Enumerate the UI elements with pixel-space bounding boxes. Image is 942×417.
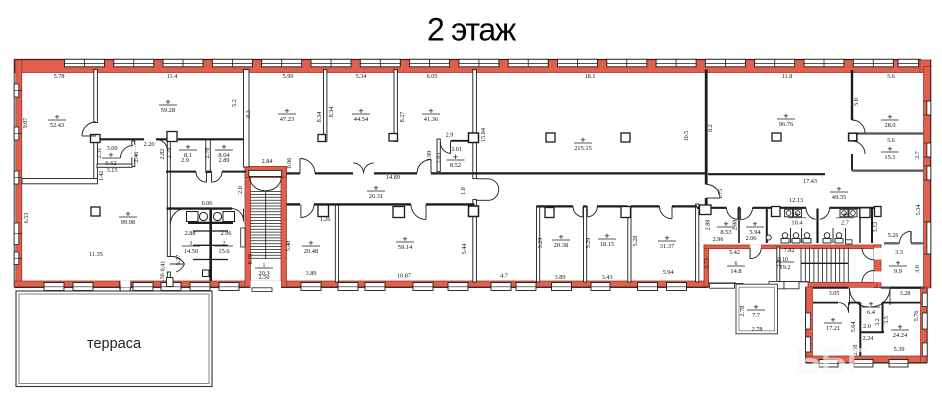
svg-text:2.79: 2.79 — [166, 148, 173, 159]
svg-text:8.27: 8.27 — [399, 112, 406, 123]
svg-text:18.15: 18.15 — [600, 241, 614, 248]
svg-text:3.05: 3.05 — [829, 290, 840, 297]
svg-text:5.27: 5.27 — [175, 255, 182, 266]
svg-text:6.05: 6.05 — [427, 73, 438, 80]
svg-text:1.8: 1.8 — [460, 187, 467, 195]
svg-text:2.78: 2.78 — [739, 306, 746, 317]
svg-text:3.89: 3.89 — [306, 270, 317, 277]
svg-text:3.28: 3.28 — [900, 290, 911, 297]
svg-text:17.43: 17.43 — [803, 178, 817, 185]
svg-text:2.96: 2.96 — [713, 236, 724, 243]
svg-text:2.83: 2.83 — [436, 153, 443, 164]
svg-text:8.2: 8.2 — [707, 124, 714, 132]
svg-text:10.4: 10.4 — [791, 220, 803, 227]
svg-text:2.0: 2.0 — [237, 186, 244, 194]
svg-text:3.89: 3.89 — [555, 274, 566, 281]
svg-text:4.7: 4.7 — [500, 273, 508, 280]
svg-text:14.8: 14.8 — [730, 268, 741, 275]
svg-text:8.53: 8.53 — [720, 229, 731, 236]
svg-text:5.6: 5.6 — [887, 73, 895, 80]
svg-text:2.99: 2.99 — [426, 151, 433, 162]
svg-text:5.29: 5.29 — [537, 238, 544, 249]
svg-text:99.98: 99.98 — [121, 219, 135, 226]
svg-text:15.84: 15.84 — [480, 128, 487, 142]
svg-text:2.84: 2.84 — [262, 158, 273, 165]
svg-text:2.06: 2.06 — [746, 235, 757, 242]
svg-text:5.48: 5.48 — [285, 241, 292, 252]
svg-text:11.8: 11.8 — [782, 73, 793, 80]
svg-text:2.50: 2.50 — [259, 274, 270, 281]
svg-text:96.76: 96.76 — [779, 121, 793, 128]
svg-text:ЬБГ: ЬБГ — [795, 340, 867, 381]
svg-text:3.00: 3.00 — [107, 145, 118, 152]
svg-text:1.26: 1.26 — [320, 216, 331, 223]
svg-text:11.4: 11.4 — [167, 73, 178, 80]
svg-text:2.9: 2.9 — [181, 157, 189, 164]
svg-text:2.31: 2.31 — [96, 148, 103, 159]
svg-text:15.6: 15.6 — [218, 248, 229, 255]
svg-text:6.06: 6.06 — [202, 200, 213, 207]
svg-text:0.41: 0.41 — [160, 261, 167, 272]
svg-text:8.10: 8.10 — [247, 254, 254, 265]
svg-text:28.0: 28.0 — [884, 122, 895, 129]
svg-text:10.87: 10.87 — [397, 273, 411, 280]
svg-text:18.1: 18.1 — [585, 73, 596, 80]
svg-text:.36: .36 — [159, 273, 166, 281]
svg-text:59.14: 59.14 — [398, 244, 413, 251]
svg-text:59.28: 59.28 — [161, 107, 175, 114]
svg-text:2.82: 2.82 — [159, 149, 166, 160]
svg-text:49.35: 49.35 — [832, 194, 846, 201]
svg-text:5.94: 5.94 — [663, 269, 674, 276]
svg-text:2.9: 2.9 — [446, 132, 454, 139]
svg-text:20.48: 20.48 — [304, 248, 318, 255]
svg-text:2 этаж: 2 этаж — [427, 12, 517, 48]
svg-text:2.89: 2.89 — [219, 157, 230, 164]
svg-text:2.88: 2.88 — [705, 220, 712, 231]
svg-text:2.88: 2.88 — [185, 230, 196, 237]
svg-text:2.7: 2.7 — [914, 151, 921, 159]
svg-text:3.2: 3.2 — [874, 318, 881, 326]
svg-text:47.23: 47.23 — [280, 116, 294, 123]
svg-text:7.7: 7.7 — [752, 312, 761, 319]
svg-text:44.54: 44.54 — [354, 116, 369, 123]
svg-text:5.39: 5.39 — [894, 346, 905, 353]
svg-text:3.0: 3.0 — [914, 265, 921, 273]
svg-text:11.35: 11.35 — [89, 251, 103, 258]
svg-text:2.78: 2.78 — [752, 326, 763, 333]
svg-text:1.75: 1.75 — [717, 189, 724, 200]
svg-text:15.1: 15.1 — [884, 154, 895, 161]
svg-text:31.37: 31.37 — [660, 243, 675, 250]
svg-text:5.78: 5.78 — [54, 73, 65, 80]
svg-text:5.6: 5.6 — [887, 137, 895, 144]
svg-text:1.42: 1.42 — [98, 171, 105, 182]
svg-text:3.43: 3.43 — [602, 274, 613, 281]
svg-text:8.34: 8.34 — [316, 112, 323, 123]
svg-text:2.73: 2.73 — [703, 258, 710, 269]
svg-text:14.50: 14.50 — [184, 248, 198, 255]
svg-text:2.7: 2.7 — [841, 220, 850, 227]
svg-text:2.0: 2.0 — [863, 323, 871, 330]
svg-text:52.43: 52.43 — [50, 122, 64, 129]
svg-text:5.34: 5.34 — [915, 205, 922, 216]
svg-text:2.96: 2.96 — [221, 230, 232, 237]
svg-text:14.89: 14.89 — [386, 174, 400, 181]
svg-text:24.24: 24.24 — [893, 332, 908, 339]
svg-text:215.15: 215.15 — [574, 145, 592, 152]
svg-text:5.26: 5.26 — [888, 232, 899, 239]
svg-text:3.15: 3.15 — [107, 167, 118, 174]
svg-text:12.13: 12.13 — [789, 197, 803, 204]
svg-text:5.34: 5.34 — [356, 73, 367, 80]
svg-text:2.46: 2.46 — [133, 152, 140, 163]
svg-text:6.4: 6.4 — [867, 309, 876, 316]
svg-text:терраса: терраса — [87, 336, 142, 352]
svg-text:5.0: 5.0 — [853, 98, 860, 106]
svg-text:5.2: 5.2 — [231, 99, 238, 107]
svg-text:9.07: 9.07 — [22, 118, 29, 129]
svg-text:5.42: 5.42 — [729, 249, 740, 256]
svg-text:0.96: 0.96 — [286, 158, 293, 169]
svg-text:10.5: 10.5 — [683, 131, 690, 142]
svg-text:6.53: 6.53 — [23, 213, 30, 224]
svg-text:5.76: 5.76 — [913, 311, 920, 322]
svg-text:5.64: 5.64 — [850, 322, 857, 333]
svg-text:6.62: 6.62 — [105, 160, 116, 167]
svg-text:8.34: 8.34 — [328, 107, 335, 118]
svg-text:9.9: 9.9 — [894, 268, 902, 275]
svg-text:2.78: 2.78 — [204, 148, 211, 159]
svg-text:5.99: 5.99 — [283, 73, 294, 80]
svg-text:41.36: 41.36 — [424, 116, 438, 123]
svg-text:8.52: 8.52 — [450, 162, 461, 169]
svg-text:5.29: 5.29 — [585, 238, 592, 249]
svg-text:3.5: 3.5 — [883, 316, 890, 324]
svg-text:26.31: 26.31 — [369, 193, 383, 200]
svg-text:3.3: 3.3 — [895, 249, 903, 256]
svg-text:5.28: 5.28 — [632, 236, 639, 247]
svg-text:8.3: 8.3 — [245, 110, 252, 118]
svg-text:2.88: 2.88 — [732, 220, 739, 231]
svg-text:2.20: 2.20 — [144, 141, 155, 148]
svg-text:2.45: 2.45 — [776, 257, 783, 268]
svg-text:17.21: 17.21 — [826, 325, 840, 332]
svg-text:20.38: 20.38 — [554, 242, 568, 249]
svg-text:3.01: 3.01 — [451, 146, 462, 153]
svg-text:5.44: 5.44 — [461, 244, 468, 255]
svg-text:7.82: 7.82 — [784, 247, 795, 254]
svg-text:3.12: 3.12 — [872, 222, 879, 233]
